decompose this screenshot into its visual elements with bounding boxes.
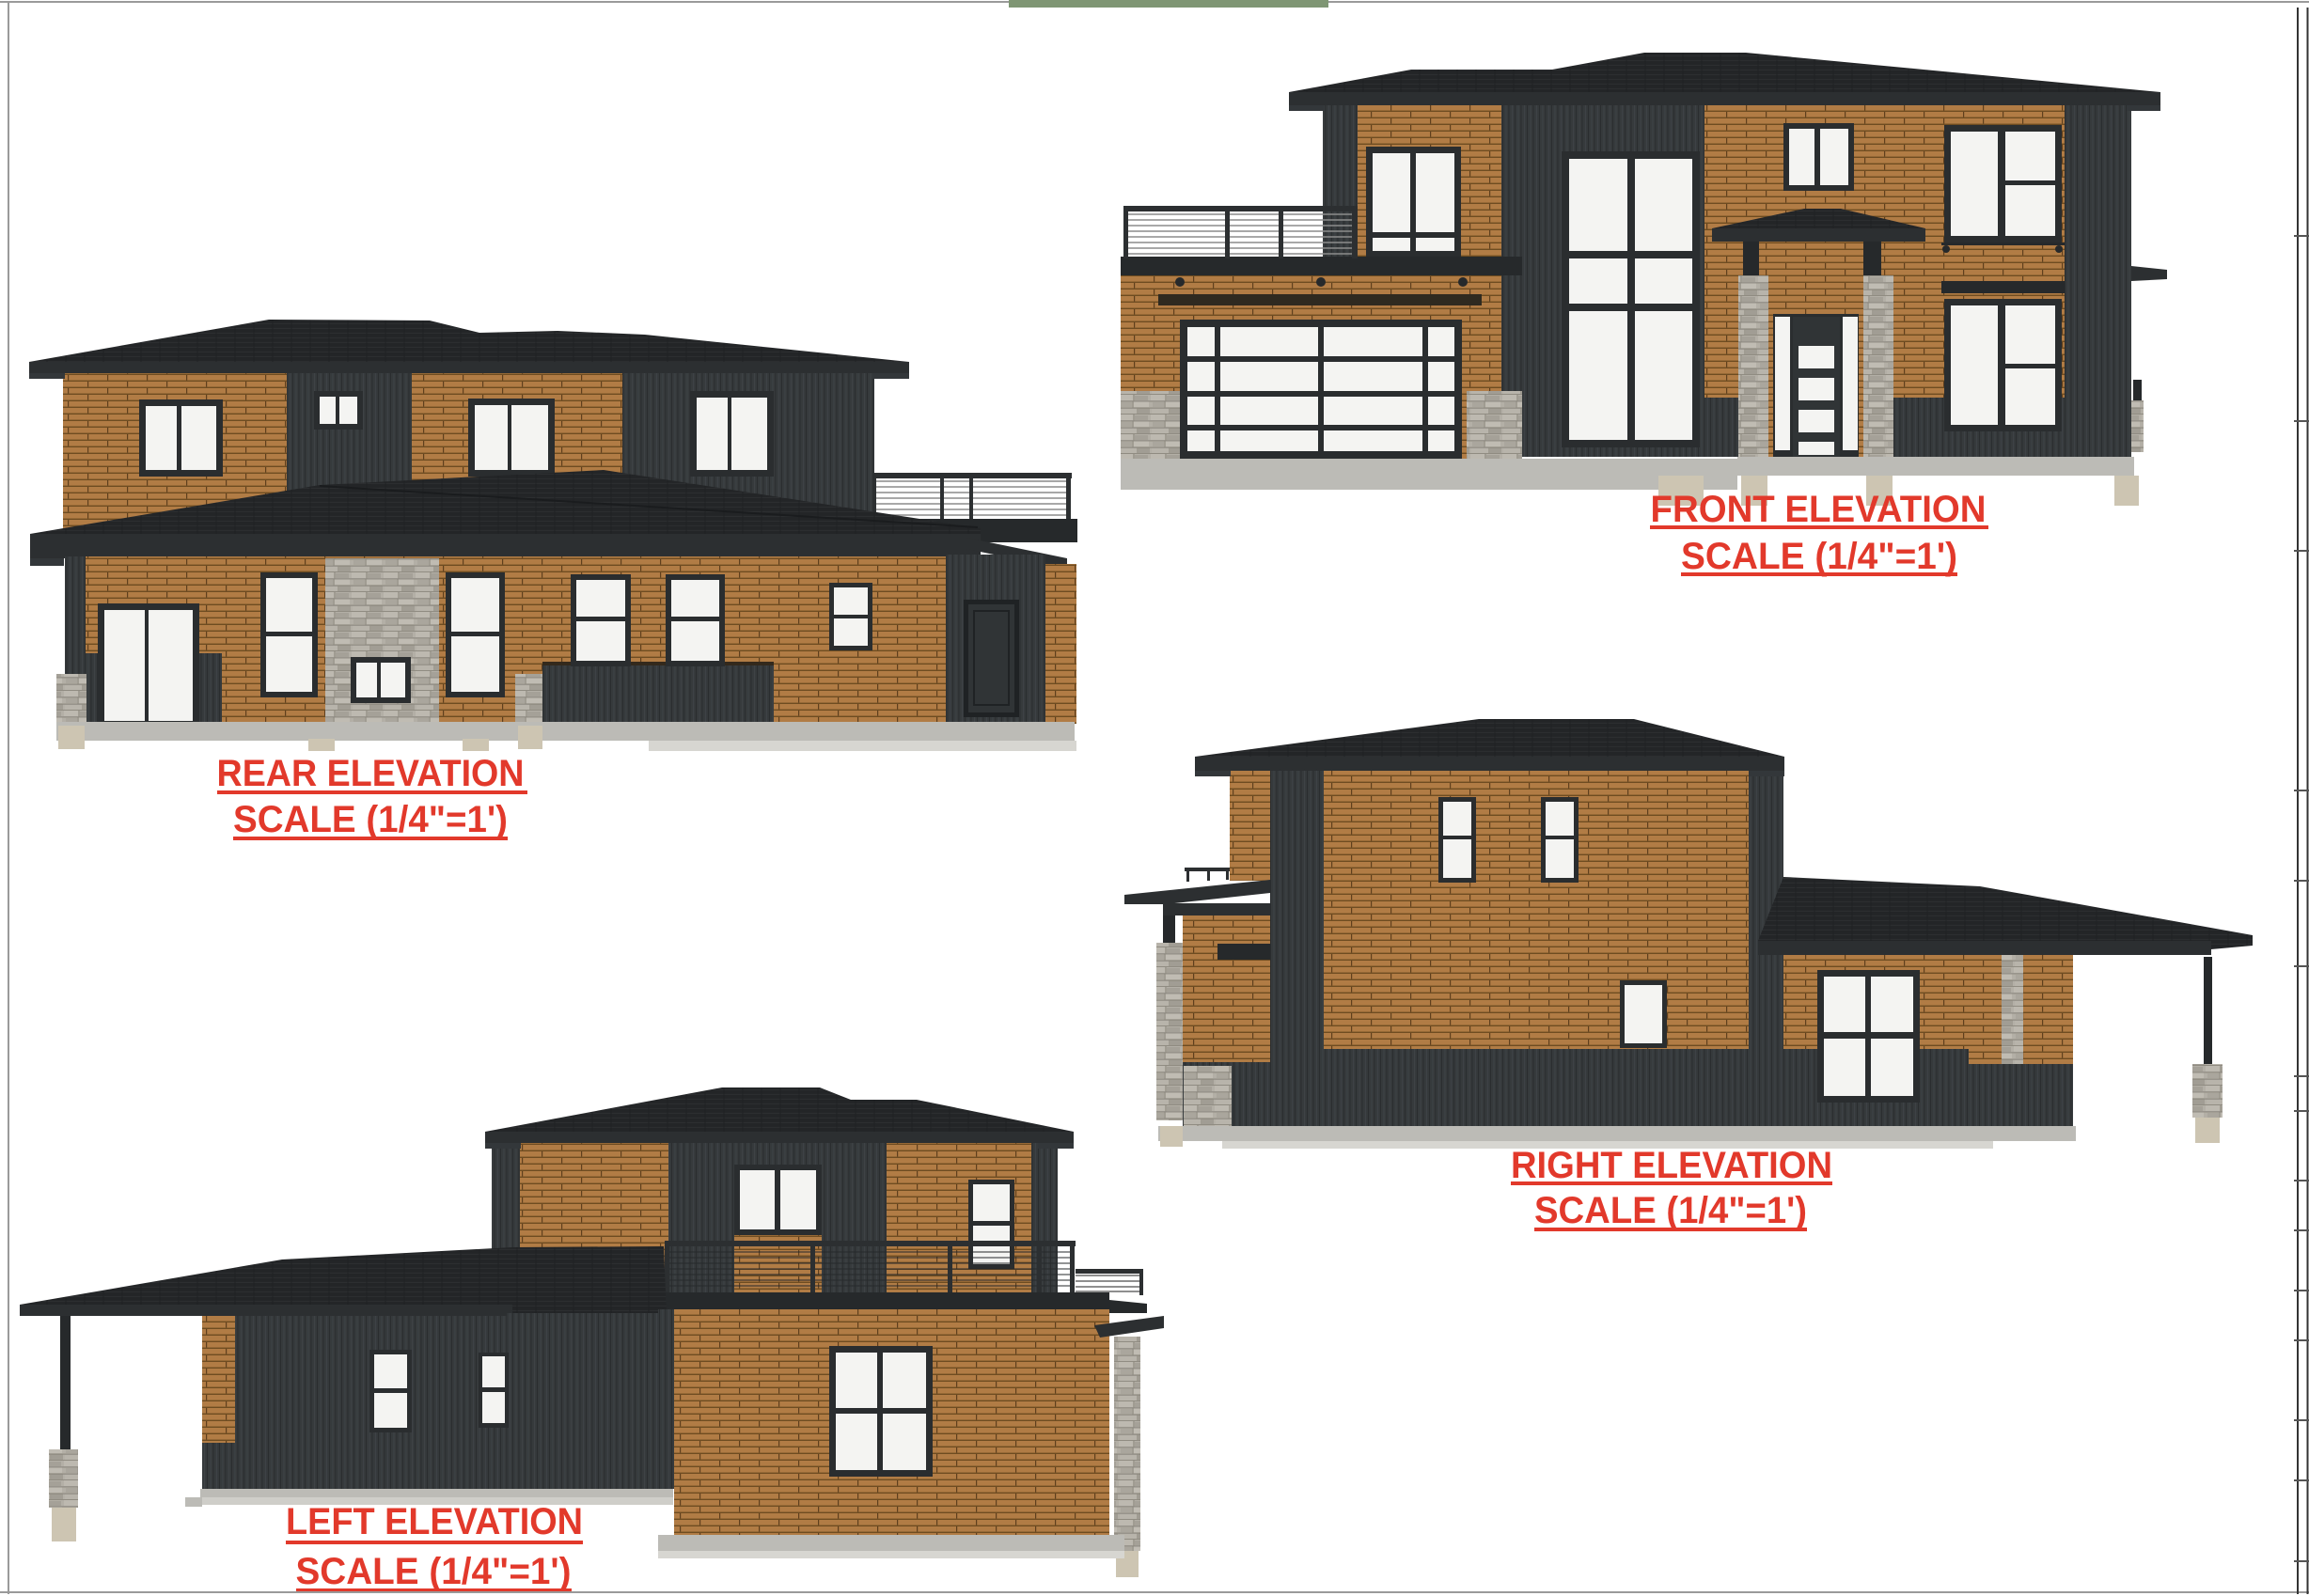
svg-text:REAR ELEVATION: REAR ELEVATION bbox=[217, 753, 525, 794]
svg-text:SCALE (1/4"=1'): SCALE (1/4"=1') bbox=[1534, 1190, 1807, 1231]
svg-text:SCALE (1/4"=1'): SCALE (1/4"=1') bbox=[233, 799, 508, 840]
svg-text:FRONT ELEVATION: FRONT ELEVATION bbox=[1651, 489, 1987, 530]
svg-text:RIGHT ELEVATION: RIGHT ELEVATION bbox=[1511, 1145, 1832, 1186]
svg-text:SCALE (1/4"=1'): SCALE (1/4"=1') bbox=[296, 1551, 572, 1592]
svg-text:LEFT ELEVATION: LEFT ELEVATION bbox=[286, 1501, 583, 1542]
svg-text:SCALE (1/4"=1'): SCALE (1/4"=1') bbox=[1681, 536, 1957, 577]
